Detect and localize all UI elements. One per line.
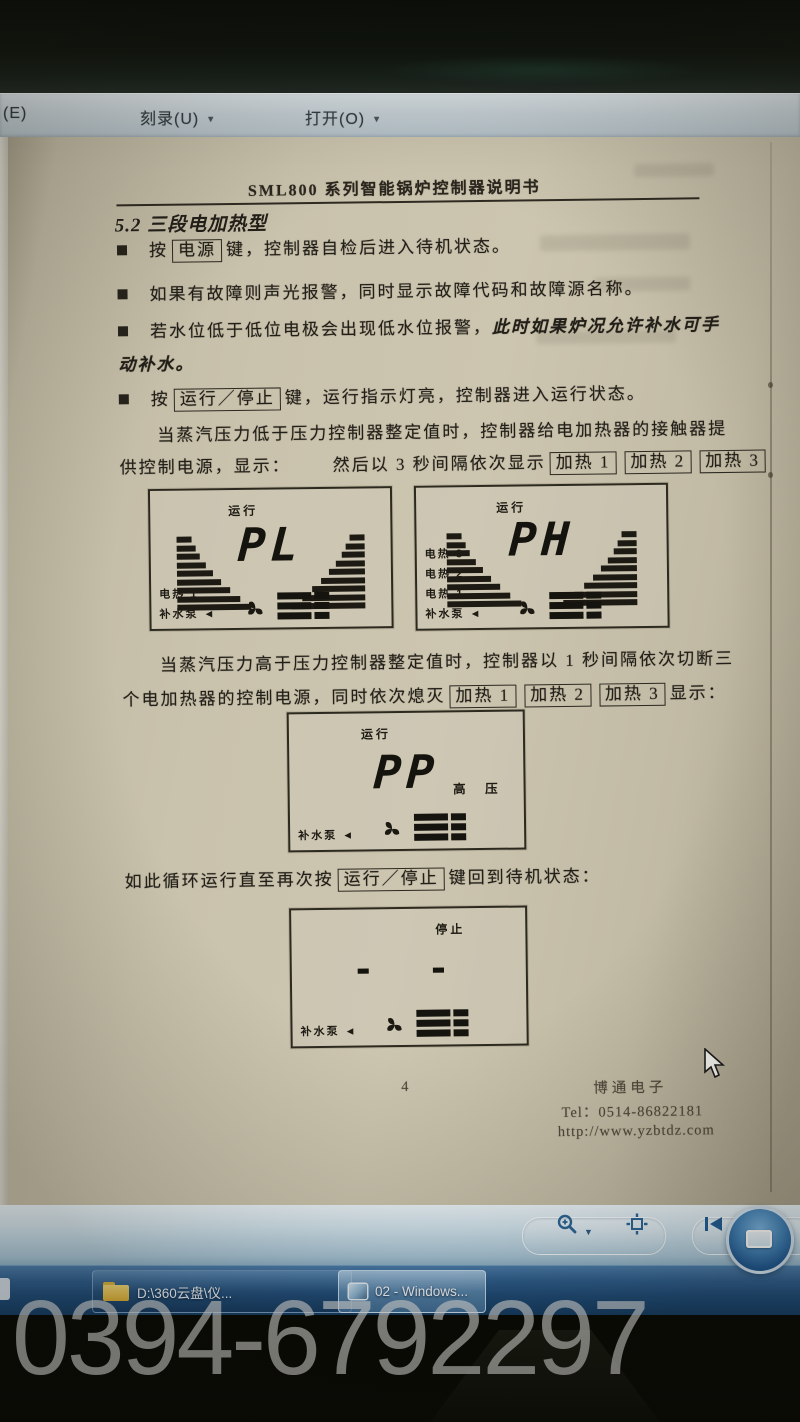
lcd-status-run: 运行 [228,502,258,519]
actual-size-icon[interactable] [626,1213,648,1235]
menu-item-open[interactable]: 打开(O)▼ [305,105,382,129]
menu-item-burn[interactable]: 刻录(U)▼ [140,105,216,129]
zoom-dropdown-caret[interactable]: ▼ [584,1227,593,1237]
page-bleedthrough [540,233,690,251]
bullet-low-water-line2: 动补水。 [118,349,194,375]
lcd-status-stop: 停止 [435,920,465,937]
bullet-square-icon [118,326,128,336]
water-level-icon [416,1009,468,1037]
heat3-key-label: 加热 3 [599,683,666,707]
run-stop-key-label: 运行／停止 [338,867,445,891]
menu-item-email-partial[interactable]: (E) [3,105,27,123]
heat2-key-label: 加热 2 [524,684,591,708]
lcd-output-labels: 电热 1 补水泵 ◄ [159,585,216,622]
lcd-output-labels: 补水泵 ◄ [298,827,355,844]
run-stop-key-label: 运行／停止 [174,387,281,411]
heat1-key-label: 加热 1 [449,685,516,709]
footer-url: http://www.yzbtdz.com [558,1122,715,1141]
bullet-run-stop: 按运行／停止键，运行指示灯亮，控制器进入运行状态。 [119,379,646,412]
page-bleedthrough [634,163,714,177]
para-low-pressure-line2: 供控制电源，显示：然后以 3 秒间隔依次显示加热 1加热 2加热 3 [119,445,770,480]
loop-run-line: 如此循环运行直至再次按运行／停止键回到待机状态： [125,862,601,895]
water-level-icon [277,592,329,620]
lcd-figure-pp: 运行 PP 高 压 补水泵 ◄ [287,709,527,852]
monitor-bottom-dark-area [0,1315,800,1422]
lcd-status-run: 运行 [361,725,391,742]
power-key-label: 电源 [172,239,222,263]
taskbar-button-folder[interactable]: D:\360云盘\仪... [92,1270,352,1313]
fan-icon [380,1011,408,1039]
taskbar-button-photo-viewer[interactable]: 02 - Windows... [338,1270,486,1313]
para-high-pressure-line2: 个电加热器的控制电源，同时依次熄灭加热 1加热 2加热 3显示： [122,678,727,712]
chevron-down-icon: ▼ [372,114,382,124]
viewer-toolbar: ▼ [0,1205,800,1268]
para-high-pressure-line1: 当蒸汽压力高于压力控制器整定值时，控制器以 1 秒间隔依次切断三 [160,644,734,676]
lcd-high-pressure-label: 高 压 [453,778,506,798]
section-heading: 5.2 三段电加热型 [115,209,268,238]
lcd-figure-ph: 运行 PH 电热 3 电热 2 电热 1 补水泵 ◄ [414,483,670,631]
heat2-key-label: 加热 2 [624,450,691,474]
lcd-value: - - [292,947,526,991]
mouse-cursor [703,1048,727,1082]
para-low-pressure-line1: 当蒸汽压力低于压力控制器整定值时，控制器给电加热器的接触器提 [157,414,727,446]
lcd-output-labels: 电热 3 电热 2 电热 1 补水泵 ◄ [425,545,483,622]
bullet-square-icon [117,289,127,299]
previous-image-icon[interactable] [702,1213,726,1235]
footer-company: 博通电子 [593,1076,667,1098]
reflection-tint [380,55,700,85]
heat1-key-label: 加热 1 [550,451,617,475]
image-file-icon [349,1284,367,1299]
manual-page: SML800 系列智能锅炉控制器说明书 5.2 三段电加热型 按电源键，控制器自… [0,132,800,1210]
viewer-canvas: SML800 系列智能锅炉控制器说明书 5.2 三段电加热型 按电源键，控制器自… [0,137,800,1205]
photo-viewer-menubar: (E) 刻录(U)▼ 打开(O)▼ [0,93,800,138]
fan-icon [378,815,406,843]
page-number: 4 [401,1079,409,1096]
photographed-monitor-screen: (E) 刻录(U)▼ 打开(O)▼ SML800 系列智能锅炉控制器说明书 5.… [0,0,800,1422]
fan-icon [513,594,541,622]
bullet-power: 按电源键，控制器自检后进入待机状态。 [117,232,511,264]
fan-icon [241,595,269,623]
lcd-output-labels: 补水泵 ◄ [300,1023,357,1040]
slideshow-button[interactable] [726,1206,794,1274]
monitor-top-dark-area [0,0,800,95]
water-level-icon [414,813,466,841]
bullet-square-icon [117,245,127,255]
monitor-stand-shadow [430,1330,660,1422]
bullet-fault-alarm: 如果有故障则声光报警，同时显示故障代码和故障源名称。 [117,274,643,305]
taskbar-button-label: 02 - Windows... [375,1284,468,1299]
slideshow-frame-icon [746,1230,772,1248]
lcd-figure-pl: 运行 PL 电热 1 补水泵 ◄ [148,486,394,631]
windows-taskbar: D:\360云盘\仪... 02 - Windows... [0,1265,800,1316]
taskbar-left-edge-button[interactable] [0,1278,10,1300]
chevron-down-icon: ▼ [206,114,216,124]
folder-icon [103,1282,129,1301]
bullet-square-icon [119,394,129,404]
lcd-figure-standby: 停止 - - 补水泵 ◄ [289,905,529,1048]
zoom-magnifier-icon[interactable] [556,1213,578,1235]
water-level-icon [549,592,601,620]
footer-tel: Tel：0514-86822181 [561,1099,703,1122]
taskbar-button-label: D:\360云盘\仪... [137,1282,232,1302]
heat3-key-label: 加热 3 [699,450,766,474]
